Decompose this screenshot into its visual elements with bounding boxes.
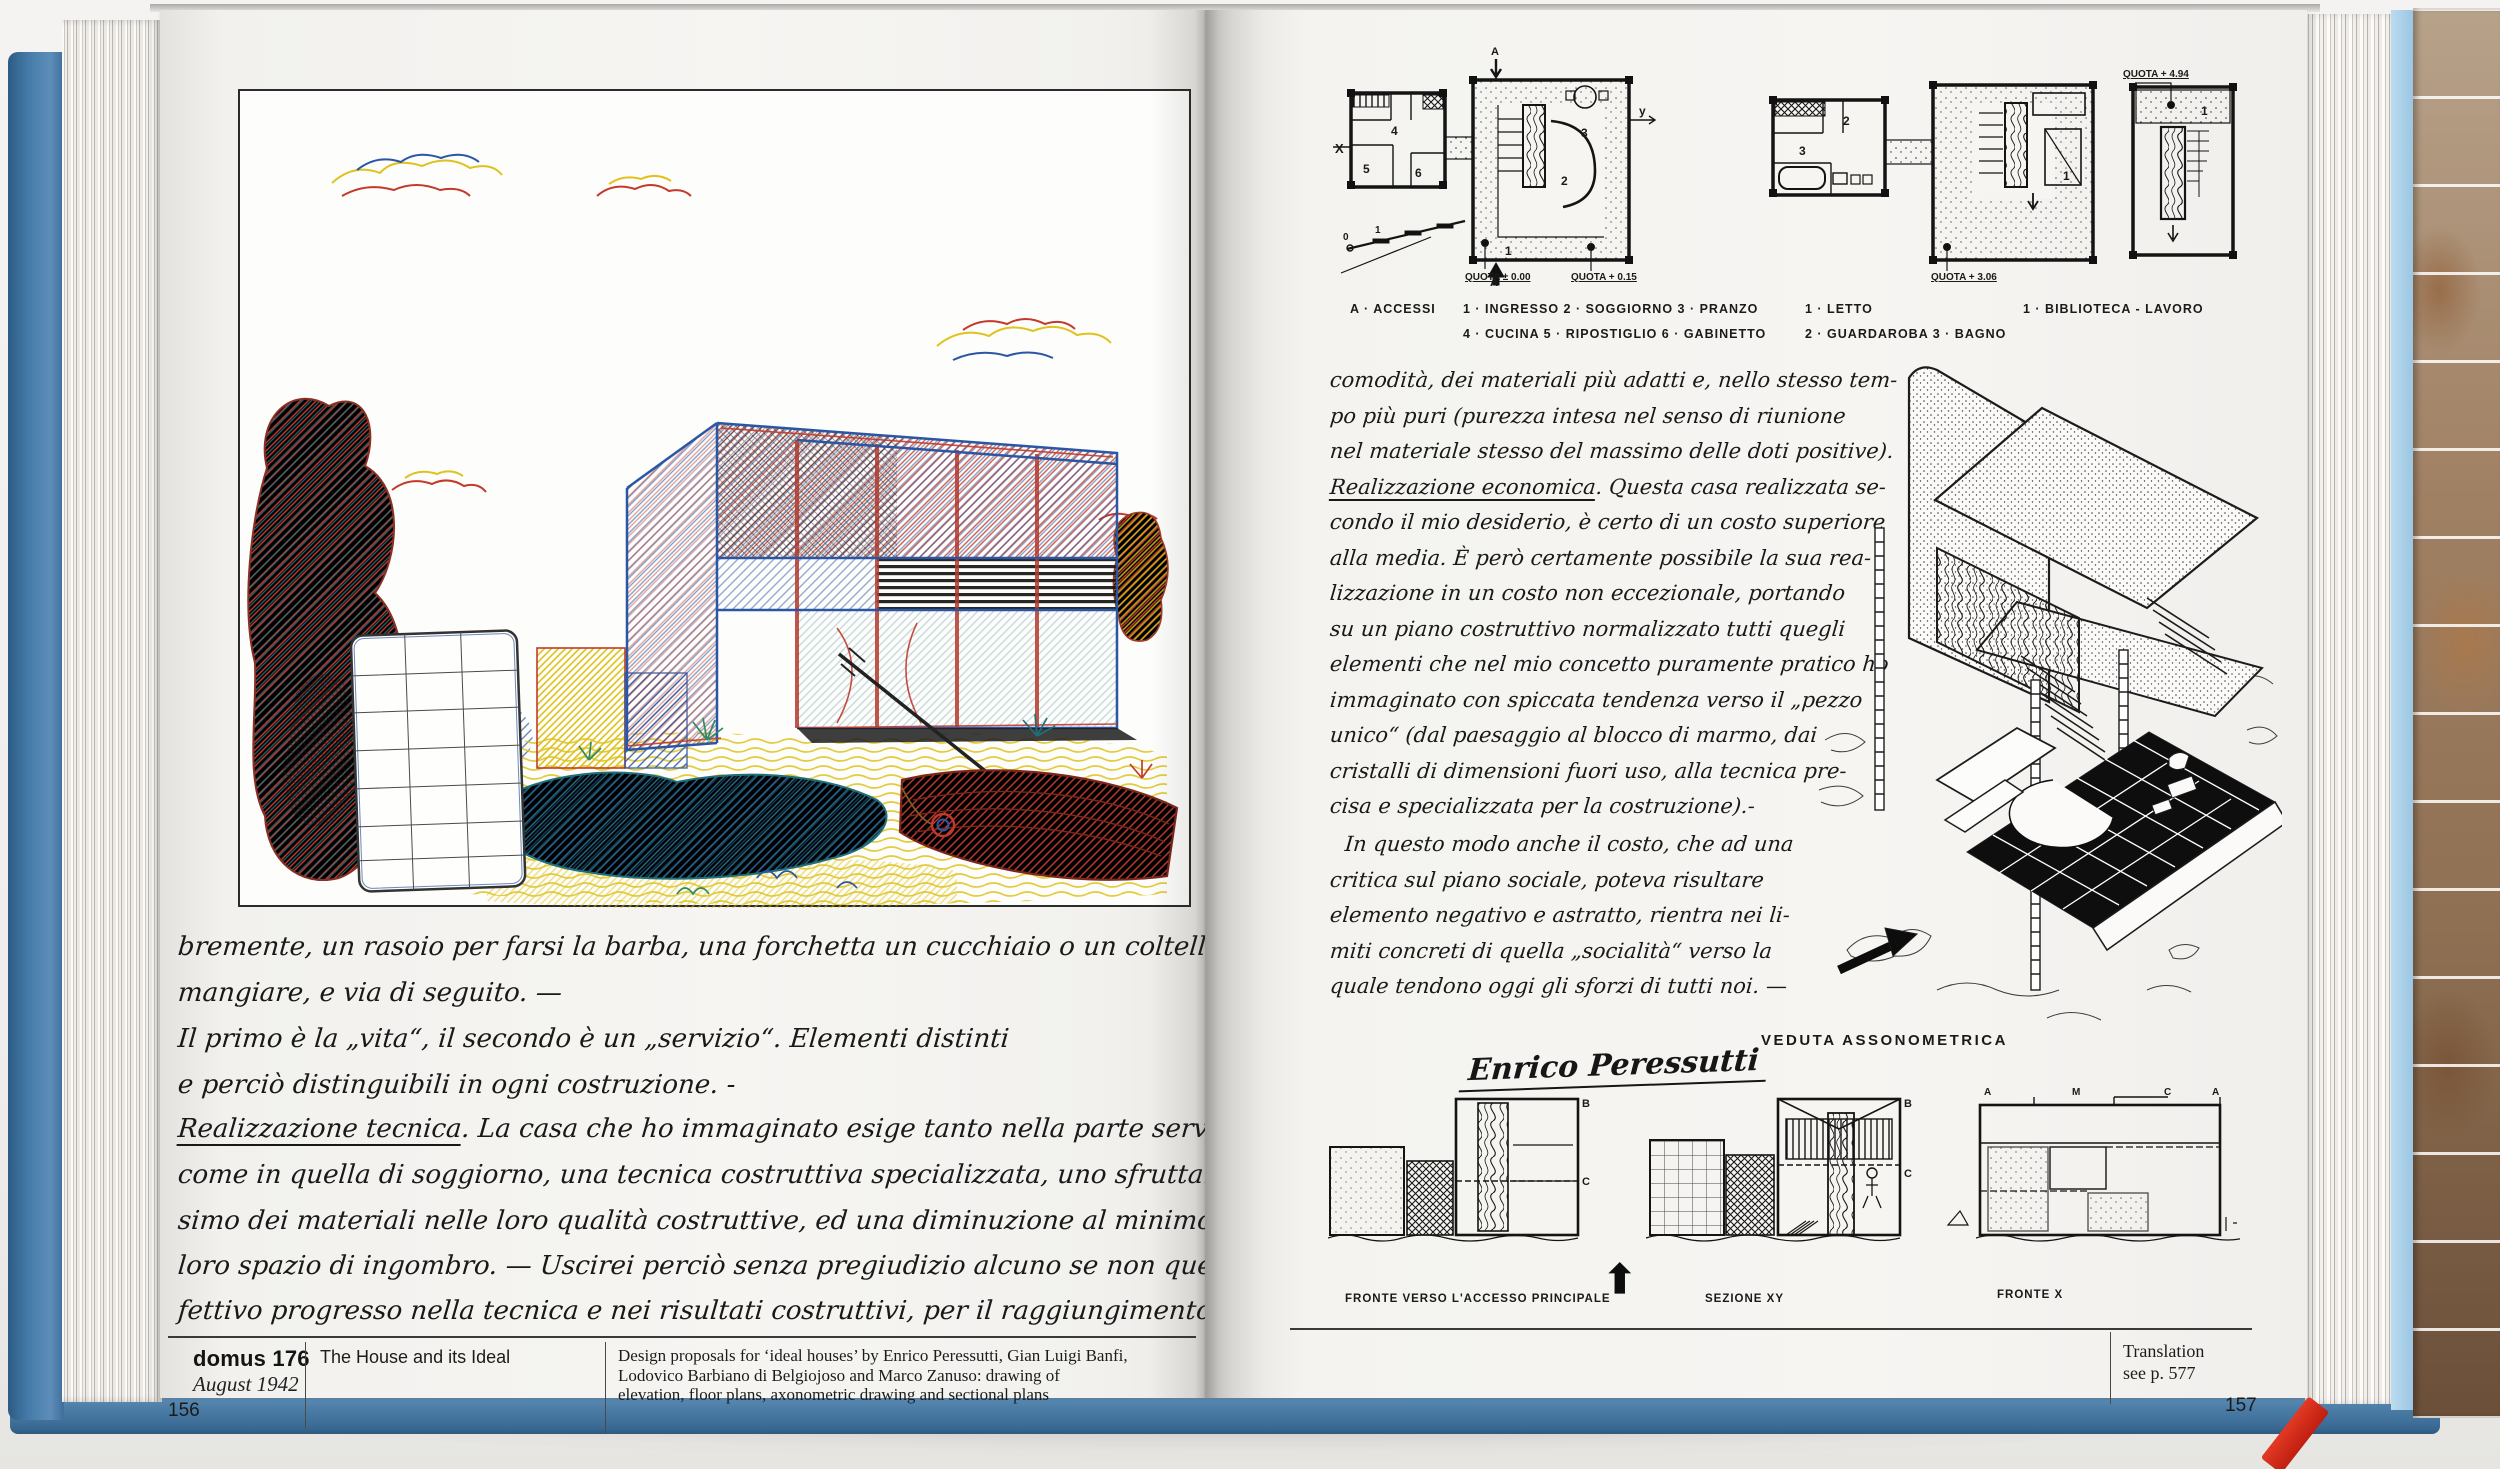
section-letter-b: B: [1904, 1098, 1912, 1110]
handwriting-line: miti concreti di quella „socialità“ vers…: [1329, 939, 1773, 963]
legend-accessi: A · ACCESSI: [1350, 302, 1436, 316]
legend-rooms-top: 1 · BIBLIOTECA - LAVORO: [2023, 302, 2204, 316]
journal-issue: domus 176: [193, 1346, 310, 1372]
floor-plan-upper: [1769, 81, 2097, 271]
book-photo: bremente, un rasoio per farsi la barba, …: [0, 0, 2500, 1469]
left-page: bremente, un rasoio per farsi la barba, …: [160, 10, 1205, 1398]
legend-rooms-upper-1: 1 · LETTO: [1805, 302, 1873, 316]
room-number: 3: [1581, 126, 1588, 140]
underlined-heading: Realizzazione tecnica: [177, 1114, 463, 1146]
section-label-front: FRONTE VERSO L'ACCESSO PRINCIPALE: [1345, 1293, 1611, 1305]
legend-rooms-ground-1: 1 · INGRESSO 2 · SOGGIORNO 3 · PRANZO: [1463, 302, 1758, 316]
article-title: The House and its Ideal: [320, 1347, 510, 1368]
section-label-x: FRONTE X: [1997, 1289, 2063, 1301]
axis-label-a: A: [1491, 46, 1499, 58]
floor-plan-top: [2129, 83, 2237, 259]
floor-plan-ground: [1333, 59, 1655, 285]
right-page: X y A A 0 1 1 2 3 4 5 6 QUOTA ± 0.00 QUO…: [1205, 10, 2307, 1398]
axis-label-x: X: [1335, 141, 1344, 156]
room-number: 2: [1561, 174, 1568, 188]
quota-label: QUOTA + 0.15: [1571, 272, 1637, 283]
scale-label: 1: [1375, 225, 1381, 236]
footer-divider: [305, 1342, 306, 1428]
section-label-xy: SEZIONE XY: [1705, 1293, 1784, 1305]
front-elevation: [1328, 1099, 1578, 1241]
handwriting-line: bremente, un rasoio per farsi la barba, …: [177, 932, 1276, 962]
handwriting-line: Il primo è la „vita“, il secondo è un „s…: [177, 1024, 1011, 1054]
footer-rule: [168, 1336, 1196, 1338]
footer-divider: [2110, 1332, 2111, 1404]
handwriting-line: In questo modo anche il costo, che ad un…: [1344, 832, 1795, 856]
section-letter-m: M: [2072, 1087, 2080, 1098]
translation-line: see p. 577: [2123, 1362, 2204, 1384]
room-number: 5: [1363, 162, 1370, 176]
back-cover-artwork: [2413, 8, 2500, 1418]
handwriting-line: su un piano costruttivo normalizzato tut…: [1329, 617, 1846, 641]
panel-building: [351, 630, 526, 892]
translation-note: Translation see p. 577: [2123, 1340, 2204, 1384]
quota-label: QUOTA + 3.06: [1931, 272, 1997, 283]
page-edges-right: [2305, 14, 2391, 1404]
footer-rule: [1290, 1328, 2252, 1330]
underlined-heading: Realizzazione economica: [1329, 475, 1597, 501]
section-letter-c: C: [1904, 1168, 1912, 1180]
translation-line: Translation: [2123, 1340, 2204, 1362]
section-letter-c: C: [2164, 1087, 2171, 1098]
handwriting-line: lizzazione in un costo non eccezionale, …: [1329, 581, 1846, 605]
axonometric-drawing: [1817, 350, 2282, 1050]
room-number: 1: [1505, 244, 1512, 258]
entry-arrow: [1839, 928, 1917, 970]
handwriting-line: fettivo progresso nella tecnica e nei ri…: [177, 1296, 1379, 1326]
room-number: 2: [1843, 114, 1850, 128]
legend-rooms-upper-2: 2 · GUARDAROBA 3 · BAGNO: [1805, 327, 2006, 341]
handwriting-line: e perciò distinguibili in ogni costruzio…: [177, 1070, 737, 1100]
room-number: 4: [1391, 124, 1398, 138]
axis-label-y: y: [1639, 104, 1646, 118]
room-number: 6: [1415, 166, 1422, 180]
colored-elevation-sketch: [237, 88, 1192, 908]
handwriting-line: mangiare, e via di seguito. —: [177, 978, 564, 1008]
handwriting-line: critica sul piano sociale, poteva risult…: [1329, 868, 1765, 892]
quota-label: QUOTA + 4.94: [2123, 69, 2189, 80]
handwriting-line: po più puri (purezza intesa nel senso di…: [1329, 404, 1847, 428]
room-number: 3: [1799, 144, 1806, 158]
page-number: 157: [2225, 1395, 2257, 1417]
section-xy: [1646, 1099, 1900, 1241]
handwriting-line: alla media. È però certamente possibile …: [1329, 546, 1872, 570]
handwriting-line: cristalli di dimensioni fuori uso, alla …: [1329, 759, 1848, 783]
handwriting-line: loro spazio di ingombro. — Uscirei perci…: [177, 1251, 1363, 1281]
scale-label: 0: [1343, 232, 1349, 243]
page-number: 156: [168, 1400, 200, 1422]
handwriting-line: come in quella di soggiorno, una tecnica…: [177, 1160, 1358, 1190]
axonometric-caption: VEDUTA ASSONOMETRICA: [1761, 1032, 2008, 1049]
quota-label: QUOTA ± 0.00: [1465, 272, 1531, 283]
handwriting-line: nel materiale stesso del massimo delle d…: [1329, 439, 1895, 463]
section-letter-b: B: [1582, 1098, 1590, 1110]
legend-rooms-ground-2: 4 · CUCINA 5 · RIPOSTIGLIO 6 · GABINETTO: [1463, 327, 1766, 341]
handwriting-line: comodità, dei materiali più adatti e, ne…: [1329, 368, 1898, 392]
handwriting-line: elemento negativo e astratto, rientra ne…: [1329, 903, 1791, 927]
room-number: 1: [2063, 169, 2070, 183]
section-letter-c: C: [1582, 1176, 1590, 1188]
sections-drawing: B C B C A M C A: [1328, 1085, 2240, 1271]
handwriting-line: condo il mio desiderio, è certo di un co…: [1329, 510, 1886, 534]
handwriting-line: quale tendono oggi gli sforzi di tutti n…: [1329, 974, 1788, 998]
section-letter-a: A: [1984, 1087, 1991, 1098]
handwriting-line: elementi che nel mio concetto puramente …: [1329, 652, 1890, 676]
handwriting-line: immaginato con spiccata tendenza verso i…: [1329, 688, 1863, 712]
handwriting-line: unico“ (dal paesaggio al blocco di marmo…: [1329, 723, 1818, 747]
handwriting-line: simo dei materiali nelle loro qualità co…: [177, 1206, 1263, 1236]
back-cover-inner-strip: [2391, 10, 2413, 1410]
floor-plans-drawing: X y A A 0 1 1 2 3 4 5 6 QUOTA ± 0.00 QUO…: [1333, 25, 2238, 287]
handwriting-text: . La casa che ho immaginato esige tanto …: [460, 1114, 1239, 1144]
section-letter-a: A: [2212, 1087, 2219, 1098]
handwriting-line: cisa e specializzata per la costruzione)…: [1329, 794, 1756, 818]
footer-divider: [605, 1342, 606, 1434]
book-cover-left: [8, 52, 64, 1420]
north-arrow-icon: ⬆: [1603, 1262, 1637, 1298]
page-edges-left: [62, 20, 162, 1402]
room-number: 1: [2201, 104, 2208, 118]
handwriting-line: Realizzazione economica. Questa casa rea…: [1329, 475, 1887, 499]
main-house-sketch: [627, 423, 1137, 750]
front-x-elevation: [1948, 1097, 2240, 1241]
handwriting-line: Realizzazione tecnica. La casa che ho im…: [177, 1114, 1240, 1144]
issue-date: August 1942: [193, 1372, 299, 1397]
